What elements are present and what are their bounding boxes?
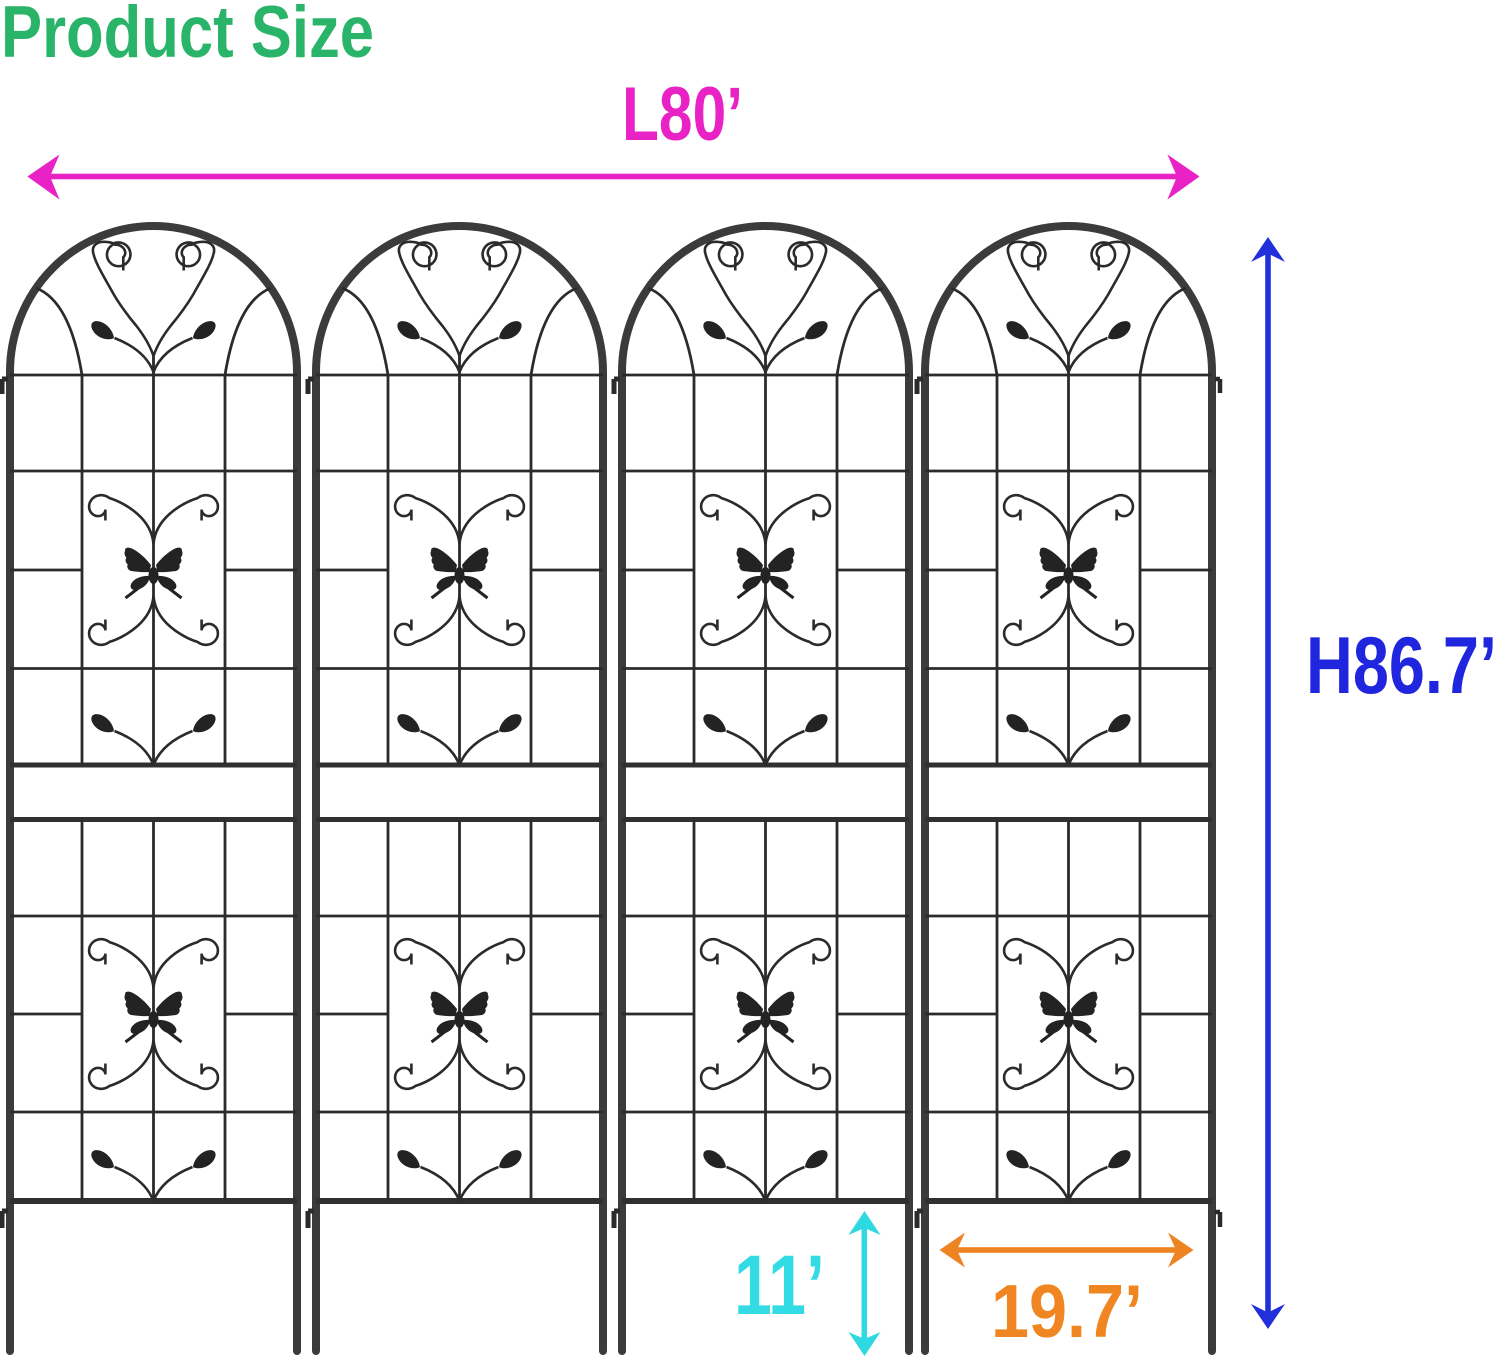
svg-text:11’: 11’ — [734, 1238, 825, 1332]
svg-text:L80’: L80’ — [622, 72, 743, 157]
svg-text:Product Size: Product Size — [1, 0, 374, 73]
svg-text:19.7’: 19.7’ — [991, 1269, 1143, 1353]
svg-text:H86.7’: H86.7’ — [1306, 621, 1497, 711]
